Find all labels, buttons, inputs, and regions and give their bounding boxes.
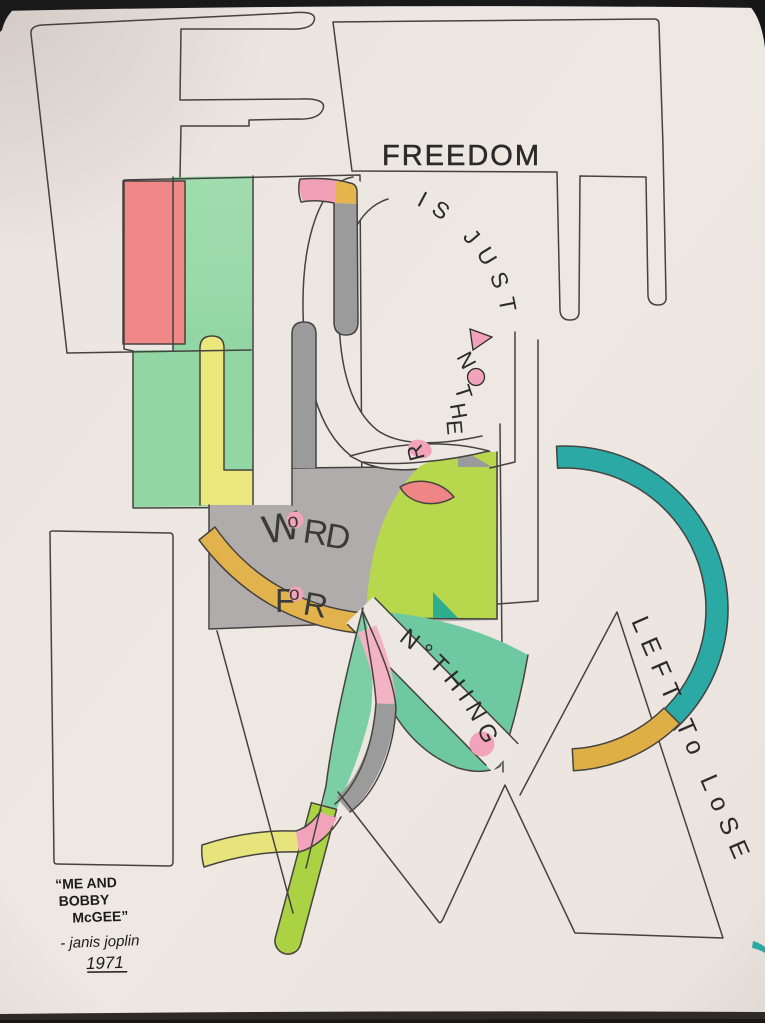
svg-text:1971: 1971 bbox=[86, 953, 124, 973]
svg-text:McGEE”: McGEE” bbox=[72, 908, 129, 926]
svg-text:E: E bbox=[441, 419, 467, 436]
svg-text:o: o bbox=[286, 510, 299, 533]
svg-text:“ME AND: “ME AND bbox=[55, 874, 117, 892]
svg-text:o: o bbox=[289, 584, 300, 605]
svg-text:- janis joplin: - janis joplin bbox=[60, 932, 140, 952]
svg-text:BOBBY: BOBBY bbox=[58, 891, 110, 909]
svg-text:FREEDOM: FREEDOM bbox=[382, 140, 541, 172]
